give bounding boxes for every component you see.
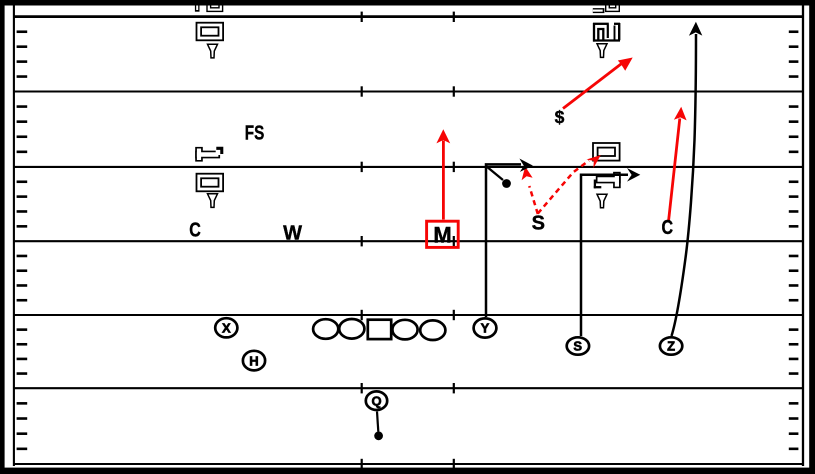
svg-text:H: H xyxy=(249,353,258,368)
svg-text:Y: Y xyxy=(481,321,490,336)
svg-text:C: C xyxy=(189,220,201,242)
svg-text:S: S xyxy=(532,213,545,235)
svg-text:FS: FS xyxy=(245,123,265,145)
svg-text:W: W xyxy=(283,222,302,244)
svg-text:M: M xyxy=(433,222,451,247)
svg-text:Q: Q xyxy=(371,393,381,408)
svg-text:X: X xyxy=(222,321,231,336)
svg-text:S: S xyxy=(573,339,582,354)
svg-text:Z: Z xyxy=(667,339,675,354)
svg-text:$: $ xyxy=(555,107,565,127)
svg-text:C: C xyxy=(662,217,674,239)
